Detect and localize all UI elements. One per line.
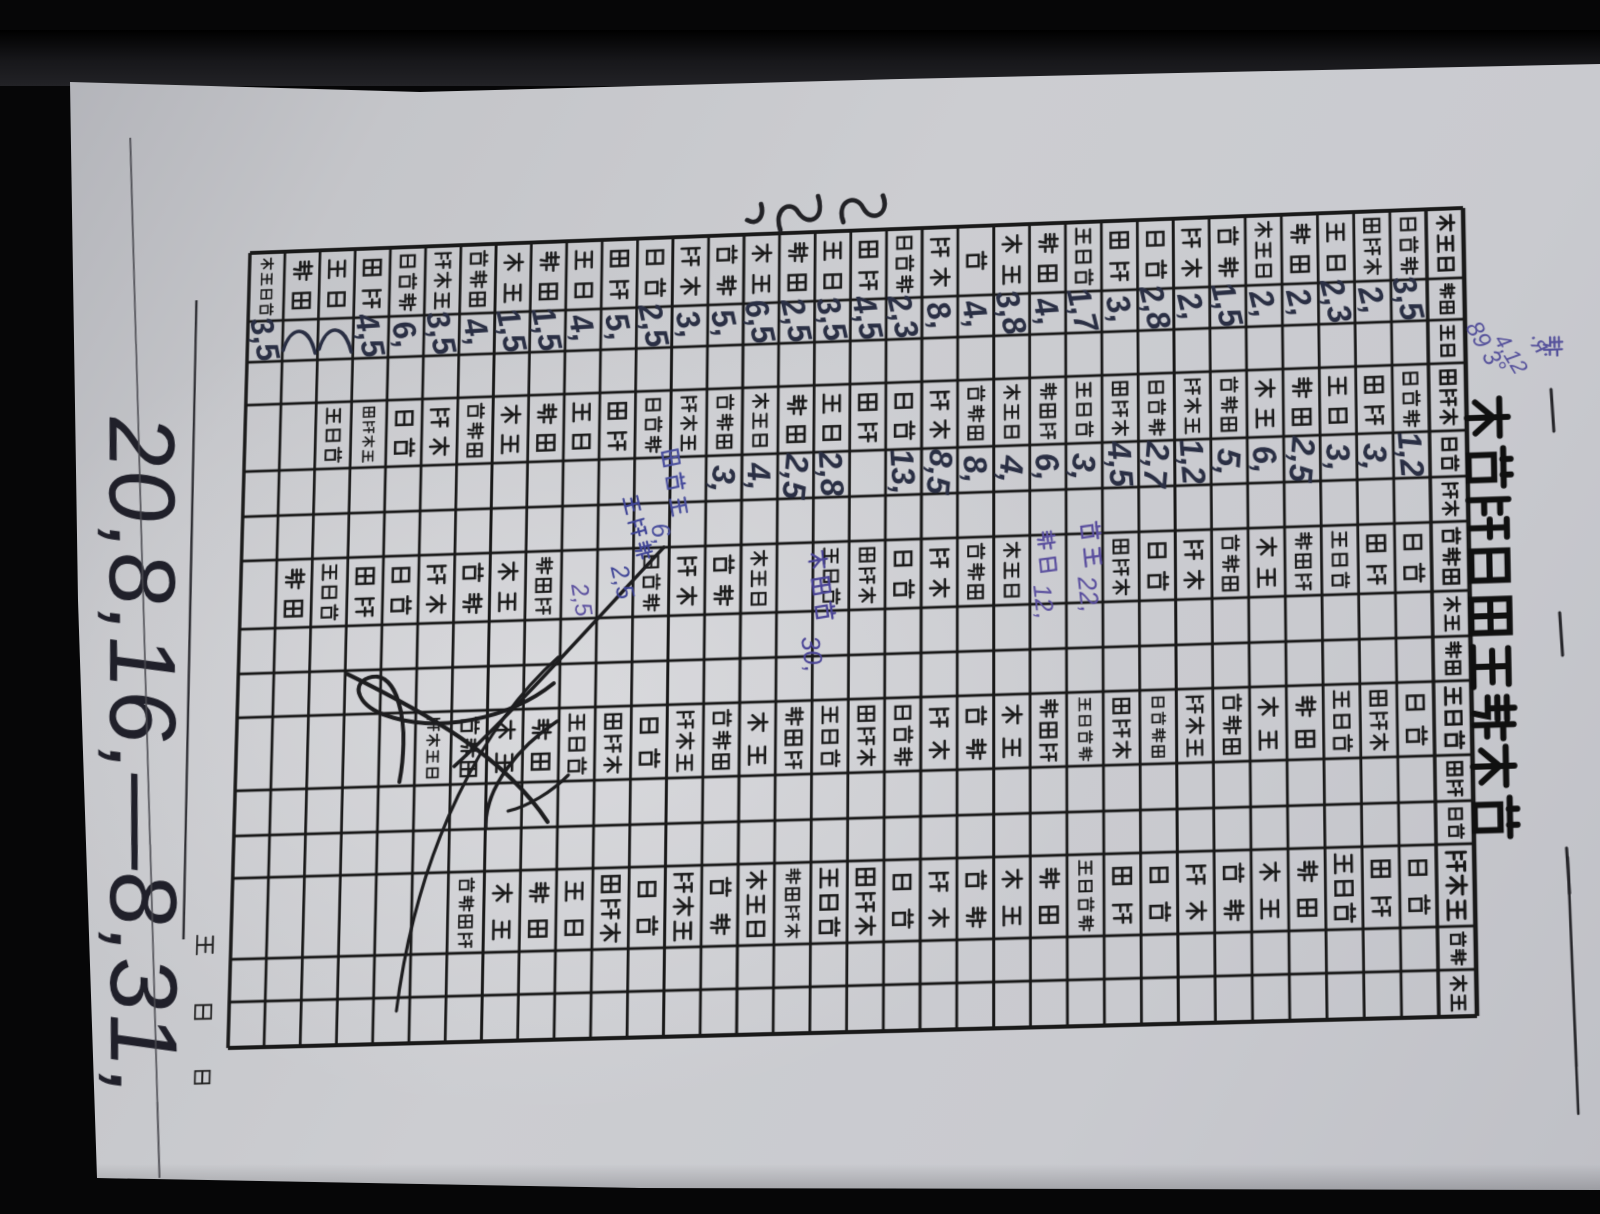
svg-text:2,5: 2,5: [1282, 435, 1323, 485]
svg-text:20,8,16,—8,31,: 20,8,16,—8,31,: [90, 411, 198, 1101]
svg-text:4,: 4,: [992, 454, 1031, 484]
svg-text:4,: 4,: [954, 295, 996, 331]
svg-text:22,: 22,: [1071, 573, 1104, 614]
svg-text:3,: 3,: [1355, 443, 1394, 472]
svg-text:1,2: 1,2: [1172, 437, 1213, 486]
svg-text:5,: 5,: [1209, 447, 1248, 476]
svg-text:8,: 8,: [956, 453, 995, 484]
svg-text:5,: 5,: [598, 309, 639, 344]
svg-text:13,: 13,: [883, 447, 923, 496]
svg-text:3,5: 3,5: [243, 313, 287, 366]
svg-text:2,5: 2,5: [775, 452, 816, 501]
svg-text:2,8: 2,8: [812, 448, 852, 498]
svg-text:12,: 12,: [1027, 583, 1058, 621]
svg-text:4,5: 4,5: [1100, 438, 1140, 489]
svg-text:6,: 6,: [1245, 444, 1284, 475]
svg-text:2,: 2,: [1279, 283, 1322, 320]
svg-text:3,: 3,: [1064, 452, 1103, 481]
svg-text:1,2: 1,2: [1390, 430, 1431, 479]
svg-text:30,: 30,: [795, 634, 828, 675]
svg-text:3,: 3,: [1319, 441, 1358, 472]
svg-text:6,: 6,: [645, 520, 677, 548]
svg-text:2,7: 2,7: [1136, 440, 1177, 491]
svg-text:8,5: 8,5: [919, 448, 960, 497]
svg-text:5,: 5,: [704, 305, 745, 340]
svg-text:6,: 6,: [1028, 451, 1067, 482]
svg-text:4,: 4,: [740, 460, 778, 492]
svg-text:3,: 3,: [704, 465, 743, 494]
svg-text:2,5: 2,5: [566, 580, 598, 620]
